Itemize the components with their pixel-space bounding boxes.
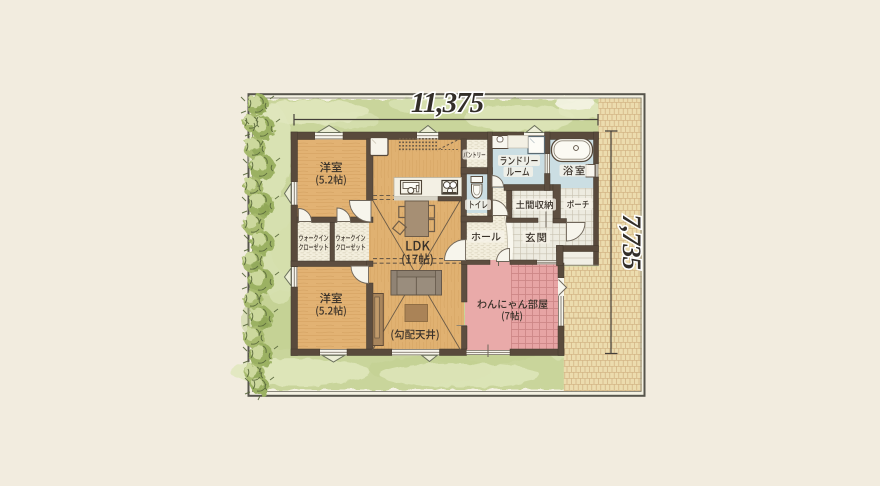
- svg-text:7,735: 7,735: [617, 214, 647, 269]
- svg-text:11,375: 11,375: [411, 87, 484, 119]
